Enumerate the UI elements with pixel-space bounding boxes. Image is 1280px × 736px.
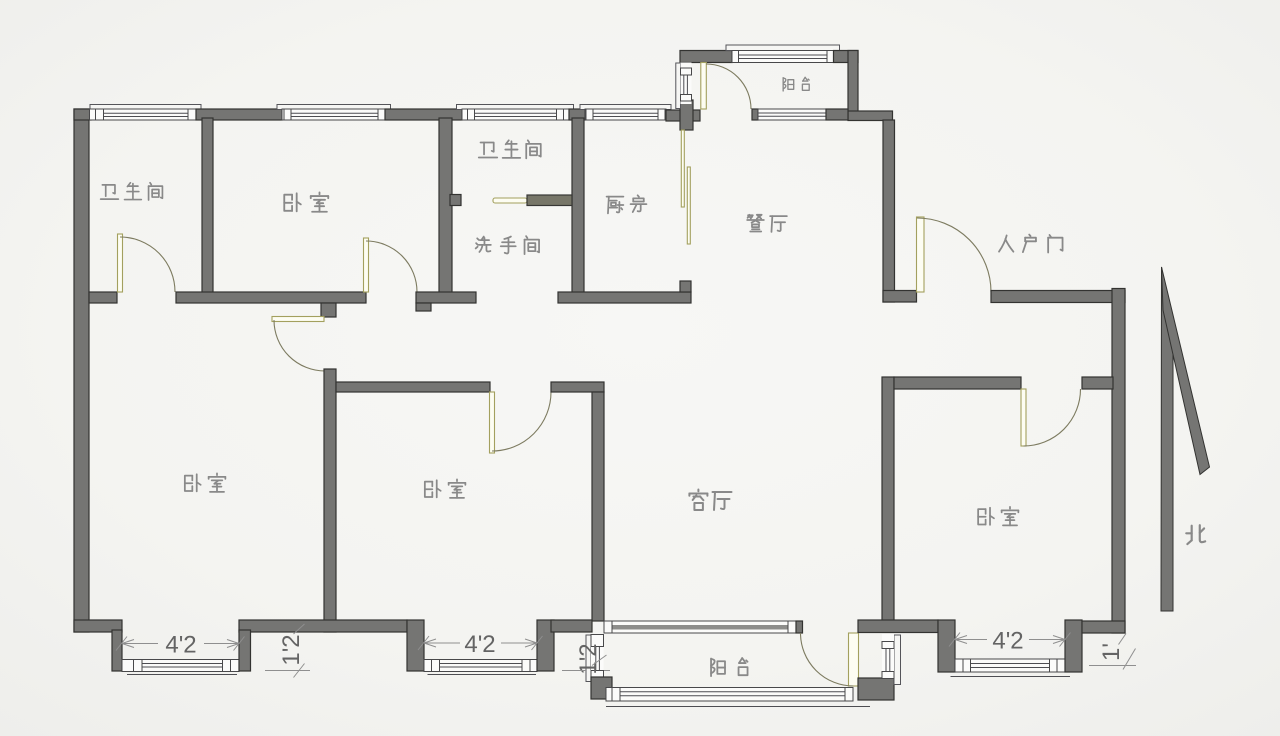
svg-text:4'2: 4'2 [992, 628, 1023, 655]
svg-text:1'2: 1'2 [278, 634, 305, 665]
svg-text:1'2: 1'2 [575, 643, 602, 674]
svg-text:1': 1' [1098, 643, 1125, 661]
svg-text:4'2: 4'2 [464, 631, 495, 658]
svg-text:4'2: 4'2 [165, 632, 196, 659]
